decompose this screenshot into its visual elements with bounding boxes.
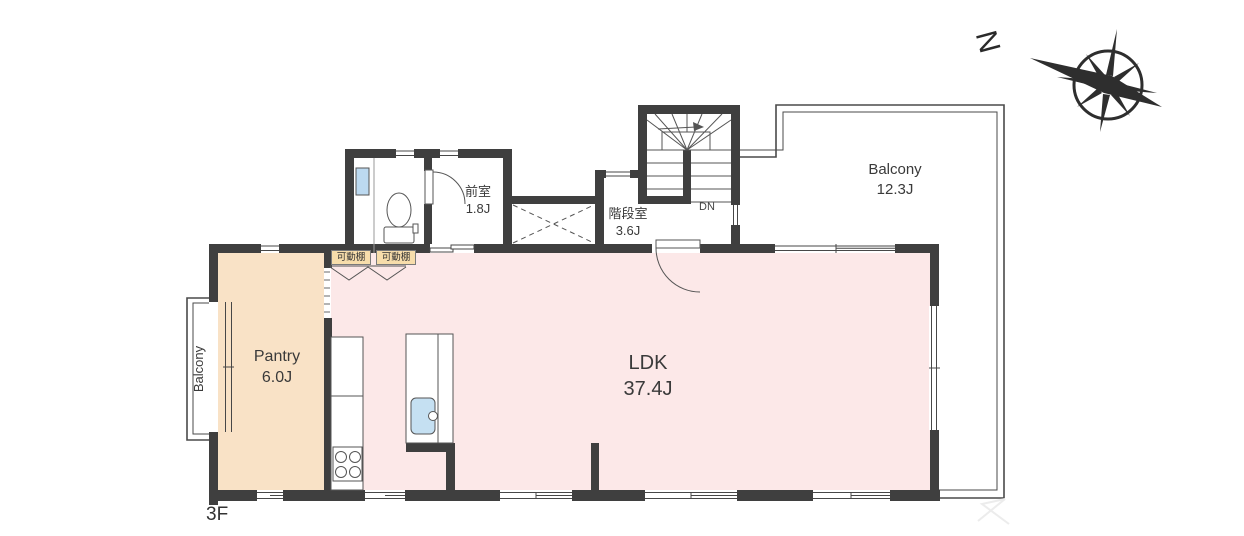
- toilet-window: [356, 168, 369, 195]
- movable-shelf-label-1: 可動棚: [331, 250, 371, 265]
- ldk-label: LDK 37.4J: [573, 350, 723, 402]
- floor-plan-drawing: [0, 0, 1244, 536]
- anteroom-label: 前室 1.8J: [440, 184, 516, 218]
- stove-icon: [333, 447, 362, 481]
- pantry-label: Pantry 6.0J: [217, 347, 337, 389]
- floor-label: 3F: [206, 503, 256, 528]
- movable-shelf-label-2: 可動棚: [376, 250, 416, 265]
- compass-icon: [1030, 29, 1162, 132]
- watermark: [978, 499, 1009, 524]
- stairs-down-label: DN: [692, 200, 722, 214]
- balcony-right-label: Balcony 12.3J: [828, 160, 962, 199]
- pantry-opening: [324, 272, 330, 312]
- kitchen-island: [406, 334, 453, 443]
- faucet-icon: [429, 412, 438, 421]
- balcony-left-label: Balcony: [191, 309, 207, 429]
- floor-plan-3f: Balcony 12.3J Pantry 6.0J LDK 37.4J 前室 1…: [0, 0, 1244, 536]
- stairwell-label: 階段室 3.6J: [592, 206, 664, 240]
